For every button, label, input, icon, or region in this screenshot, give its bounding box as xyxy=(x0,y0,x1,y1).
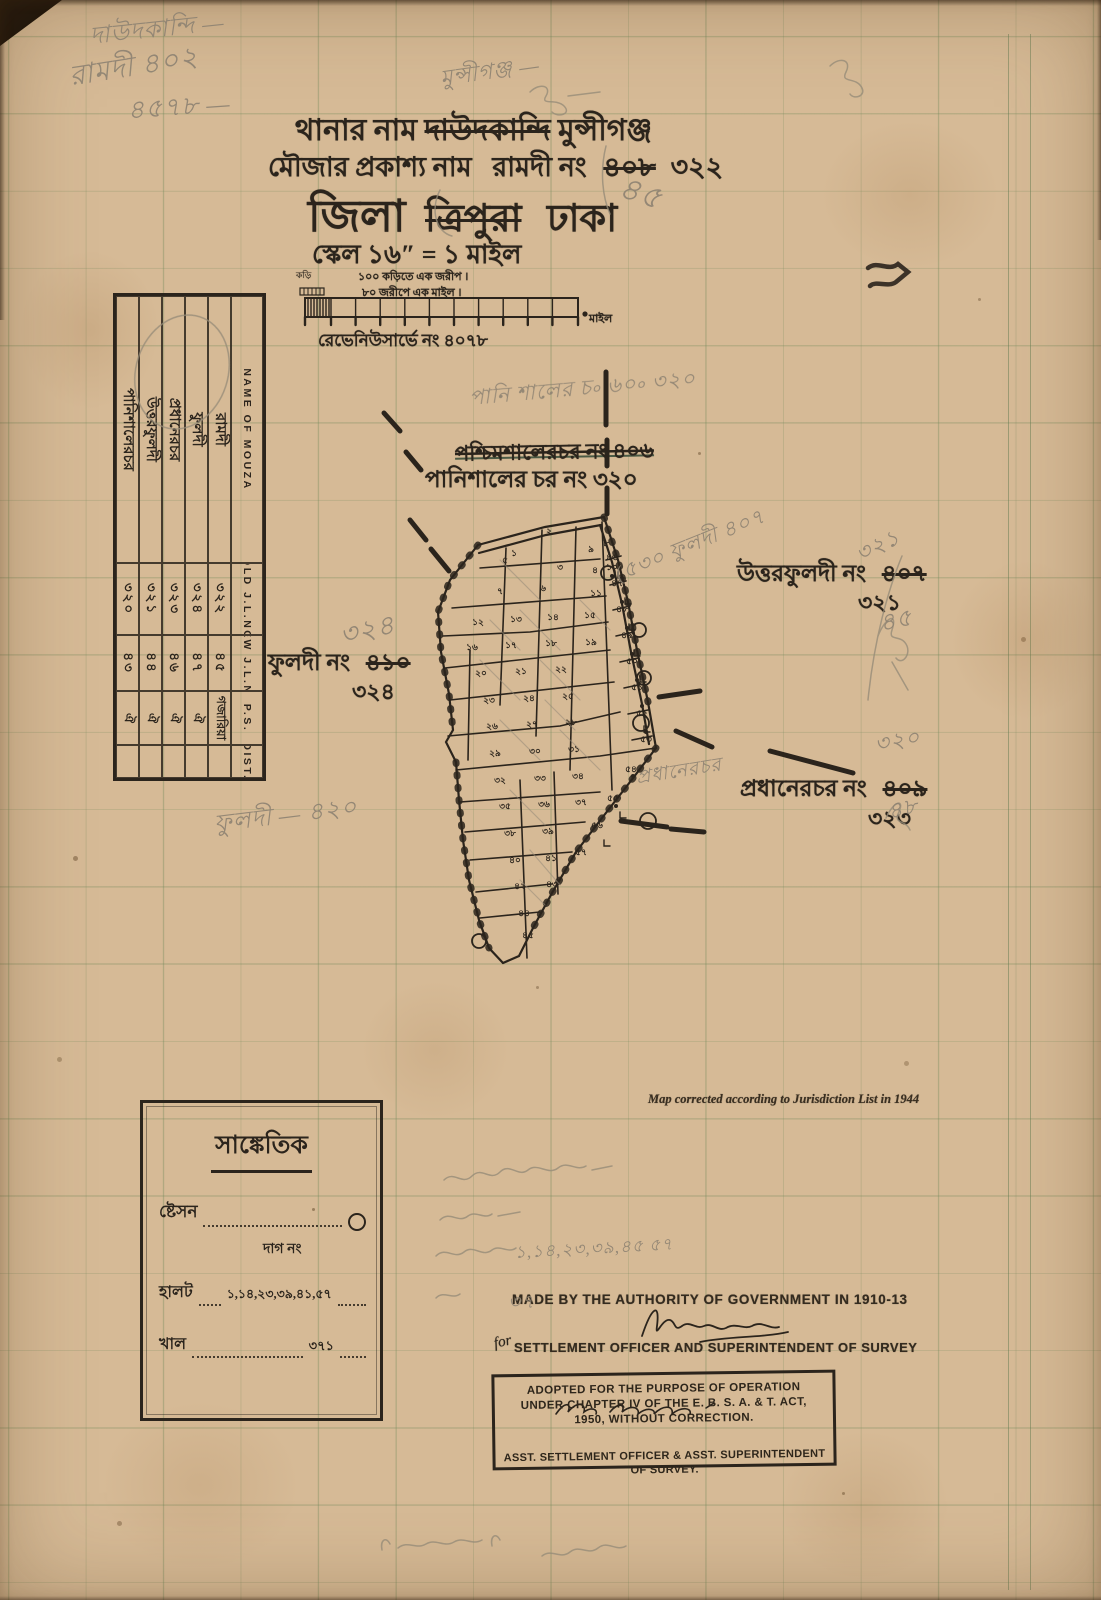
cell-ps: ঐ xyxy=(139,691,162,745)
parcel-number: ৩১ xyxy=(568,744,580,754)
pencil-annotation: পানি শালের চ৹ ৬০৹ ৩২০ xyxy=(468,362,697,417)
paper-edge-top xyxy=(0,0,1101,6)
cell-new-jl: ৪৬ xyxy=(162,635,185,691)
table-row: উত্তরফুলদী xyxy=(139,296,162,563)
cell-old-jl: ৩২২ xyxy=(208,563,231,635)
cell-dist xyxy=(162,745,185,778)
table-row: ফুলদী xyxy=(185,296,208,563)
paper-edge-bottom xyxy=(0,1596,1101,1600)
parcel-number: ৫৭ xyxy=(575,847,587,857)
legend-label-station: ষ্টেসন xyxy=(159,1199,197,1227)
legend-value-halot: ১,১৪,২৩,৩৯,৪১,৫৭ xyxy=(227,1286,332,1306)
thana-struck-name: দাউদকান্দি xyxy=(425,114,551,147)
parcel-number: ২০ xyxy=(475,668,487,678)
parcel-number: ৪১ xyxy=(545,853,557,863)
paper-stain xyxy=(360,980,510,1120)
pencil-annotation: ৩২০ xyxy=(872,720,924,764)
cell-old-jl: ৩২১ xyxy=(139,563,162,635)
col-header-dist: DIST. xyxy=(231,745,263,778)
parcel-number: ৫৫ xyxy=(607,793,619,803)
legend-item-halot: হালট ১,১৪,২৩,৩৯,৪১,৫৭ xyxy=(159,1279,366,1306)
legend-item-khal: খাল ৩৭১ xyxy=(159,1331,366,1358)
col-header-old-jl: OLD J.L.NO xyxy=(231,563,263,635)
survey-map-sheet: থানার নাম দাউদকান্দি মুন্সীগঞ্জ মৌজার প্… xyxy=(0,0,1101,1600)
parcel-number: ৫ xyxy=(502,555,508,565)
legend-dotted-line xyxy=(338,1302,366,1306)
col-header-name: NAME OF MOUZA xyxy=(231,296,263,563)
label-struck-no: ৪০৭ xyxy=(882,561,927,586)
label-text: ফুলদী নং xyxy=(268,650,350,675)
parcel-number: ৪৯ xyxy=(621,630,633,640)
parcel-number: ১১ xyxy=(590,588,602,598)
parcel-number: ৪৩ xyxy=(546,879,558,889)
parcel-number: ২৭ xyxy=(526,719,538,729)
parcel-number: ৩০ xyxy=(529,746,541,756)
parcel-number: ২২ xyxy=(555,664,567,674)
paper-stain xyxy=(100,1400,300,1570)
paper-edge-right xyxy=(1097,0,1101,240)
panishaler-char-label: পানিশালের চর নং ৩২০ xyxy=(425,461,638,500)
scale-unit-small: কড়ি xyxy=(296,268,311,283)
mouza-name: রামদী নং xyxy=(492,152,586,182)
parcel-number: ৩৪ xyxy=(572,771,584,781)
pencil-annotation: ৪৫৭৮ — xyxy=(126,83,232,134)
parcel-number: ২৫ xyxy=(562,691,574,701)
legend-title: সাঙ্কেতিক xyxy=(211,1125,312,1173)
revenue-survey-no: রেভেনিউসার্ভে নং ৪০৭৮ xyxy=(318,328,488,356)
legend-item-station: ষ্টেসন xyxy=(159,1199,366,1227)
cell-old-jl: ৩২০ xyxy=(116,563,139,635)
parcel-number: ৩২ xyxy=(494,775,506,785)
cell-old-jl: ৩২৪ xyxy=(185,563,208,635)
scale-note-2: ৮০ জরীপে এক মাইল । xyxy=(362,284,461,303)
legend-dotted-line xyxy=(199,1302,221,1306)
paper-stain xyxy=(820,120,1000,270)
parcel-number: ১ xyxy=(511,548,517,558)
thana-name: মুন্সীগঞ্জ xyxy=(558,114,652,147)
cell-dist xyxy=(139,745,162,778)
cell-new-jl: ৪৭ xyxy=(185,635,208,691)
adoption-stamp: ADOPTED FOR THE PURPOSE OF OPERATION UND… xyxy=(491,1370,836,1471)
officer-line: SETTLEMENT OFFICER AND SUPERINTENDENT OF… xyxy=(514,1340,917,1355)
cell-new-jl: ৪৫ xyxy=(208,635,231,691)
margin-rule-right xyxy=(1030,34,1031,1590)
paper-edge-left xyxy=(0,0,5,320)
parcel-number: ২ xyxy=(546,526,552,536)
pencil-annotation: ফুলদী — ৪২০ xyxy=(212,788,360,845)
parcel-number: ২৩ xyxy=(483,695,495,705)
legend-label-khal: খাল xyxy=(159,1331,186,1358)
parcel-number: ৪ xyxy=(592,565,598,575)
pencil-annotation: ৩৭ xyxy=(508,1288,535,1320)
mouza-label: মৌজার প্রকাশ্য নাম xyxy=(268,152,472,182)
legend-value-khal: ৩৭১ xyxy=(309,1337,334,1358)
parcel-number: ৩৮ xyxy=(504,828,516,838)
legend-box: সাঙ্কেতিক ষ্টেসন দাগ নং হালট ১,১৪,২৩,৩৯,… xyxy=(140,1100,383,1421)
parcel-number: ২৮ xyxy=(565,717,577,727)
col-header-new-jl: NEW J.L.NO xyxy=(231,635,263,691)
cell-ps: ঐ xyxy=(185,691,208,745)
cell-ps: ঐ xyxy=(162,691,185,745)
station-symbol-icon xyxy=(348,1213,366,1231)
parcel-number: ৩৩ xyxy=(534,773,546,783)
parcel-number: ৫৩ xyxy=(640,734,652,744)
legend-item-dag: দাগ নং xyxy=(263,1237,366,1261)
legend-dotted-line xyxy=(203,1223,342,1227)
label-text: প্রধানেরচর নং xyxy=(740,776,867,801)
parcel-number: ৩৫ xyxy=(499,801,511,811)
legend-dotted-line xyxy=(340,1354,366,1358)
cell-dist xyxy=(185,745,208,778)
mouza-new-no: ৩২২ xyxy=(671,152,724,182)
parcel-number: ২৬ xyxy=(486,721,498,731)
cell-new-jl: ৪৩ xyxy=(116,635,139,691)
mouza-table-grid: NAME OF MOUZA OLD J.L.NO NEW J.L.NO P.S.… xyxy=(113,293,266,781)
thana-label: থানার নাম xyxy=(295,114,417,147)
table-row: রামদী xyxy=(208,296,231,563)
scale-mile-label: মাইল xyxy=(589,310,612,329)
parcel-number: ৩৬ xyxy=(538,799,550,809)
parcel-number: ৬ xyxy=(540,583,546,593)
parcel-number: ৪২ xyxy=(514,881,526,891)
parcel-number: ৪৫ xyxy=(522,930,534,940)
parcel-number: ৪৮ xyxy=(616,604,628,614)
table-row: প্রধানেরচর xyxy=(162,296,185,563)
pencil-annotation: মুন্সীগঞ্জ — xyxy=(438,48,542,99)
district-name: ঢাকা xyxy=(547,198,617,240)
torn-corner xyxy=(0,0,62,46)
parcel-number: ৭ xyxy=(497,586,503,596)
cell-dist xyxy=(208,745,231,778)
for-handwritten: for xyxy=(492,1332,513,1352)
pencil-annotation: ৪৫ xyxy=(876,599,917,645)
legend-dotted-line xyxy=(192,1354,303,1358)
parcel-number: ১৪ xyxy=(547,612,559,622)
phuldi-new-no: ৩২৪ xyxy=(352,675,395,712)
parcel-number: ৫৬ xyxy=(591,820,603,830)
parcel-number: ১৩ xyxy=(510,614,522,624)
parcel-number: ৯ xyxy=(588,544,594,554)
parcel-number: ১৬ xyxy=(466,642,478,652)
parcel-number: ১৭ xyxy=(505,640,517,650)
parcel-number: ৫১ xyxy=(631,682,643,692)
parcel-number: ৩৯ xyxy=(542,826,554,836)
cell-dist xyxy=(116,745,139,778)
parcel-number: ২৪ xyxy=(523,693,535,703)
cell-ps: গজারিয়া xyxy=(208,691,231,745)
parcel-number: ১২ xyxy=(472,617,484,627)
parcel-number: ৩ xyxy=(557,562,563,572)
cell-old-jl: ৩২৩ xyxy=(162,563,185,635)
paper-stain xyxy=(950,560,1100,720)
pencil-annotation: প্রধানেরচর xyxy=(634,750,724,795)
parcel-number: ৩৭ xyxy=(575,797,587,807)
table-row: পানিশালেরচর xyxy=(116,296,139,563)
parcel-number: ৮ xyxy=(602,538,609,548)
parcel-number: ১৮ xyxy=(545,638,557,648)
authority-line: MADE BY THE AUTHORITY OF GOVERNMENT IN 1… xyxy=(512,1292,908,1307)
legend-label-halot: হালট xyxy=(159,1279,193,1306)
parcel-number: ১৫ xyxy=(584,610,596,620)
label-text: উত্তরফুলদী নং xyxy=(737,561,866,586)
parcel-number: ৫০ xyxy=(626,656,638,666)
legend-label-dag: দাগ নং xyxy=(263,1237,301,1261)
col-header-ps: P.S. xyxy=(231,691,263,745)
cell-new-jl: ৪৪ xyxy=(139,635,162,691)
mouza-index-table: NAME OF MOUZA OLD J.L.NO NEW J.L.NO P.S.… xyxy=(119,293,266,775)
margin-rule-left xyxy=(1008,34,1009,1590)
parcel-number: ২৯ xyxy=(489,748,501,758)
parcel-number: ২১ xyxy=(515,666,527,676)
jurisdiction-note: Map corrected according to Jurisdiction … xyxy=(648,1092,919,1107)
cell-ps: ঐ xyxy=(116,691,139,745)
parcel-number: ৪০ xyxy=(509,855,521,865)
parcel-number: ৪৪ xyxy=(518,908,530,918)
parcel-number: ১৯ xyxy=(585,637,597,647)
parcel-number: ৫২ xyxy=(636,708,648,718)
pencil-annotation: ১,১৪,২৩,৩৯,৪৫ ৫৭ xyxy=(514,1232,674,1268)
